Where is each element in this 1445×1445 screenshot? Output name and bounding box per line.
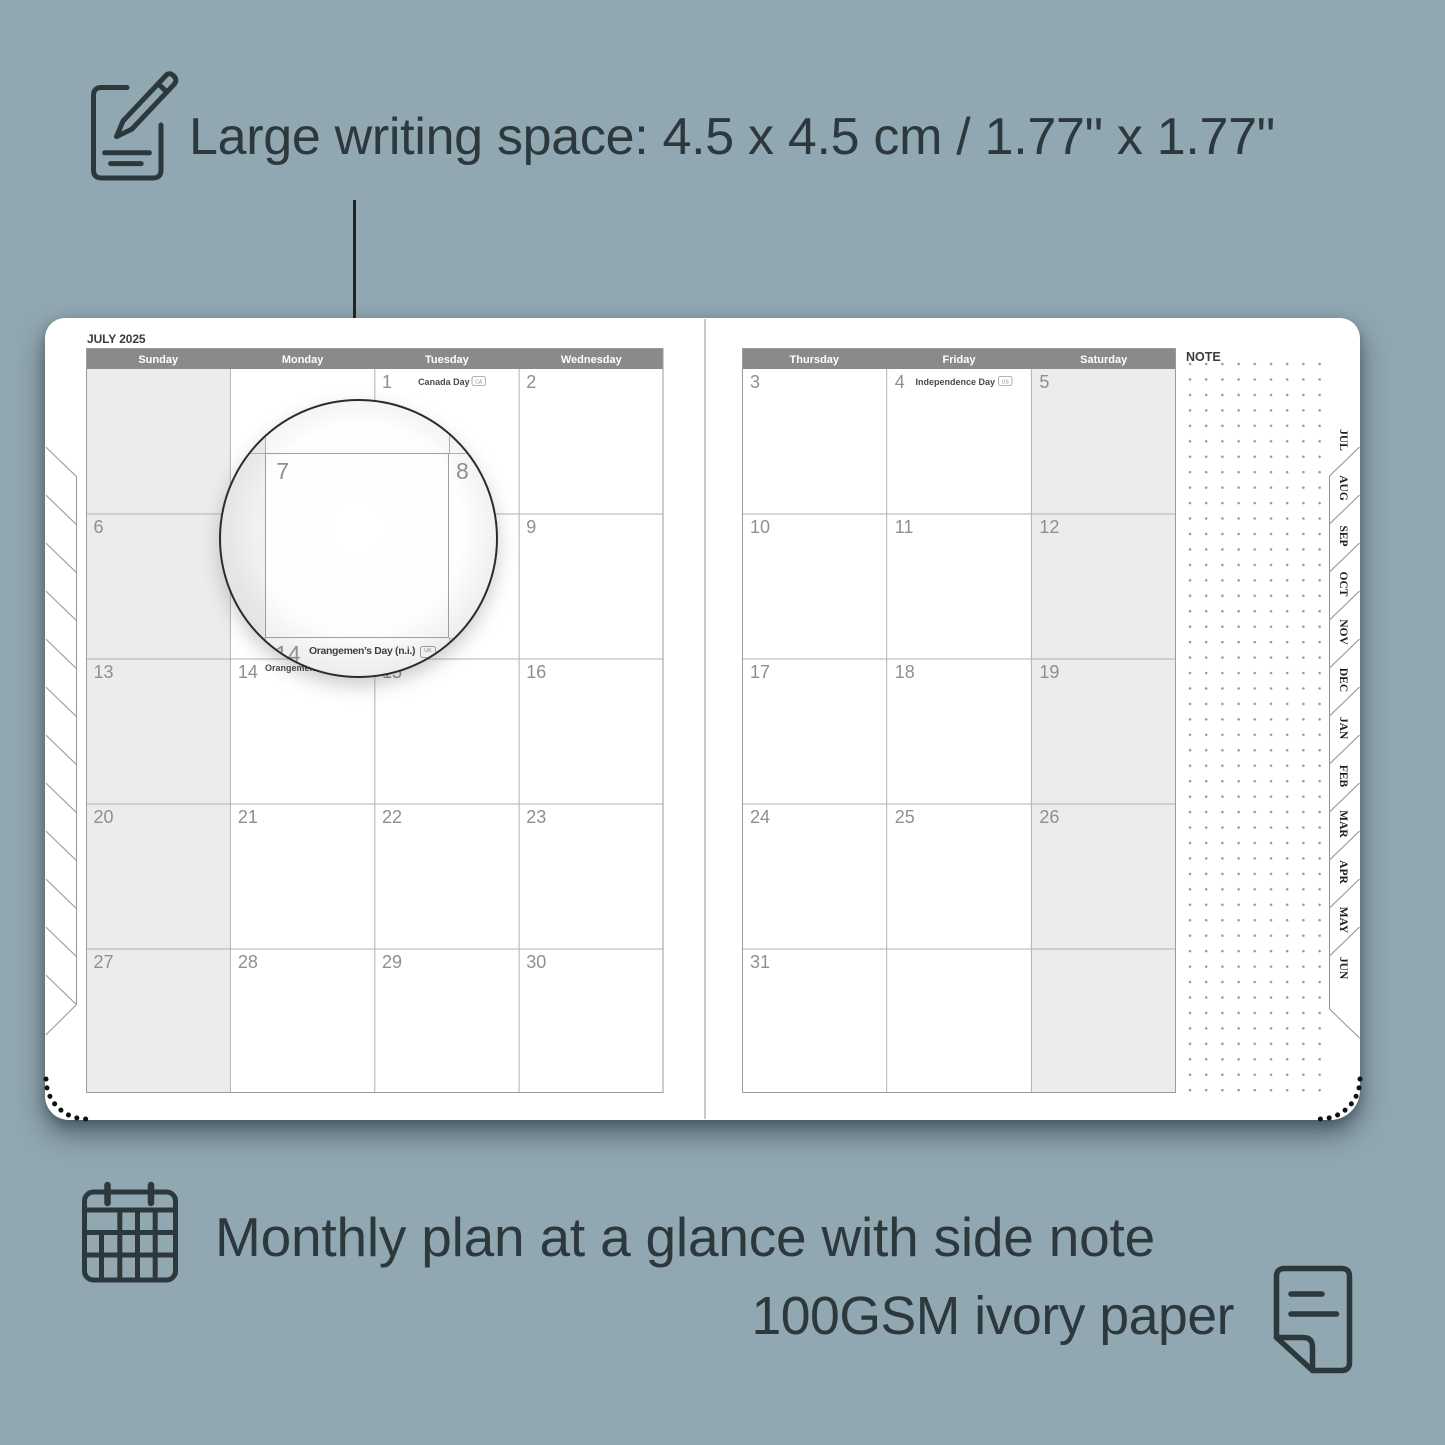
- svg-text:11: 11: [895, 517, 914, 537]
- svg-text:20: 20: [94, 807, 114, 827]
- svg-text:Friday: Friday: [942, 354, 976, 366]
- svg-text:NOTE: NOTE: [1186, 350, 1221, 364]
- svg-text:Sunday: Sunday: [138, 354, 179, 366]
- svg-text:5: 5: [1039, 372, 1049, 392]
- svg-text:17: 17: [750, 662, 770, 682]
- svg-text:16: 16: [526, 662, 546, 682]
- svg-text:JAN: JAN: [1337, 717, 1349, 740]
- svg-text:Monday: Monday: [282, 354, 324, 366]
- svg-text:APR: APR: [1337, 860, 1349, 884]
- svg-text:12: 12: [1039, 517, 1059, 537]
- svg-text:Tuesday: Tuesday: [425, 354, 470, 366]
- svg-text:CA: CA: [475, 379, 483, 385]
- svg-text:JUN: JUN: [1337, 957, 1349, 980]
- svg-text:Wednesday: Wednesday: [561, 354, 623, 366]
- svg-text:3: 3: [750, 372, 760, 392]
- svg-text:1: 1: [382, 372, 392, 392]
- svg-text:27: 27: [94, 952, 114, 972]
- svg-text:DEC: DEC: [1337, 668, 1349, 692]
- svg-text:Saturday: Saturday: [1080, 354, 1128, 366]
- svg-text:10: 10: [750, 517, 770, 537]
- svg-text:23: 23: [526, 807, 546, 827]
- svg-text:2: 2: [526, 372, 536, 392]
- svg-text:Canada Day: Canada Day: [418, 377, 470, 387]
- svg-text:24: 24: [750, 807, 770, 827]
- svg-text:6: 6: [94, 517, 104, 537]
- svg-text:18: 18: [895, 662, 915, 682]
- svg-text:30: 30: [526, 952, 546, 972]
- svg-text:Thursday: Thursday: [790, 354, 840, 366]
- svg-text:US: US: [1002, 379, 1010, 385]
- svg-text:OCT: OCT: [1337, 572, 1349, 597]
- svg-text:JUL: JUL: [1337, 429, 1349, 451]
- svg-text:26: 26: [1039, 807, 1059, 827]
- svg-text:FEB: FEB: [1337, 765, 1349, 788]
- svg-text:Independence Day: Independence Day: [915, 377, 995, 387]
- svg-text:28: 28: [238, 952, 258, 972]
- svg-text:MAR: MAR: [1337, 810, 1349, 838]
- svg-text:9: 9: [526, 517, 536, 537]
- svg-text:MAY: MAY: [1337, 907, 1349, 934]
- svg-text:AUG: AUG: [1337, 475, 1349, 501]
- svg-text:22: 22: [382, 807, 402, 827]
- svg-text:25: 25: [895, 807, 915, 827]
- svg-text:21: 21: [238, 807, 258, 827]
- svg-text:13: 13: [94, 662, 114, 682]
- svg-text:NOV: NOV: [1337, 619, 1349, 645]
- svg-text:29: 29: [382, 952, 402, 972]
- svg-text:19: 19: [1039, 662, 1059, 682]
- svg-text:31: 31: [750, 952, 770, 972]
- svg-text:4: 4: [895, 372, 905, 392]
- svg-text:SEP: SEP: [1337, 525, 1349, 546]
